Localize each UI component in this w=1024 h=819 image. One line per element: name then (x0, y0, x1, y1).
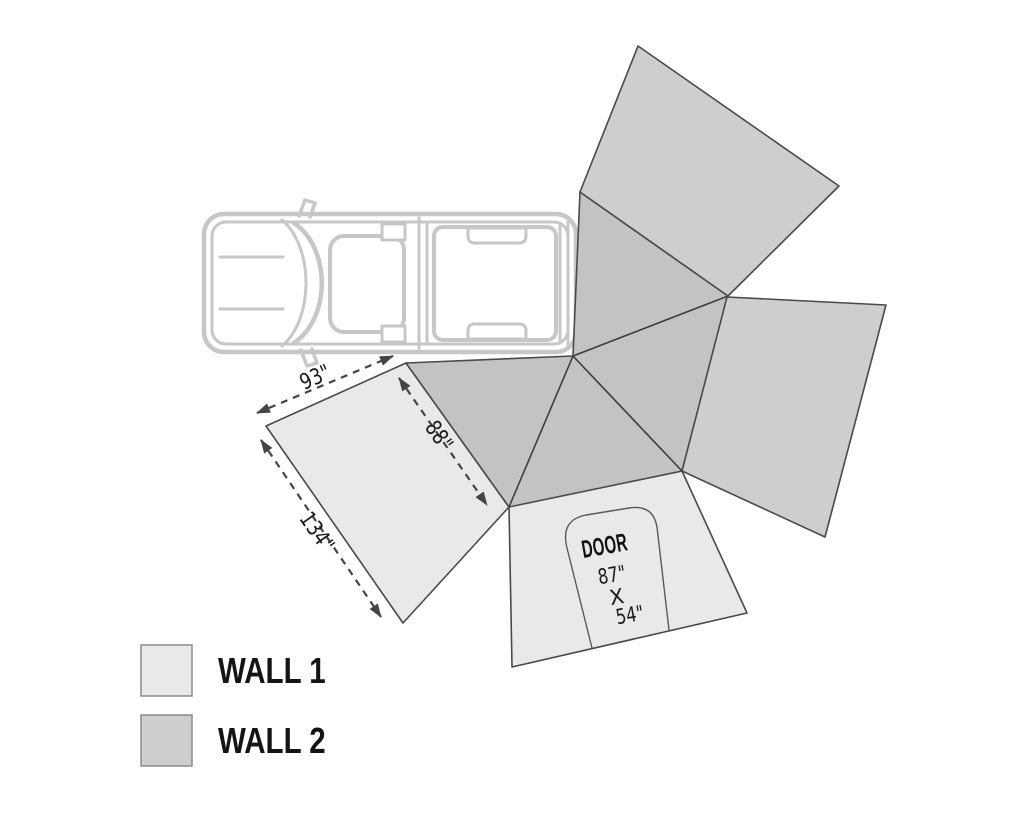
legend-label-wall2: WALL 2 (218, 720, 326, 762)
legend-row-wall2: WALL 2 (140, 714, 349, 767)
awning-wall-diagram: DOOR 87" X 54" 93" 88" 134" WALL 1 WALL … (0, 0, 1024, 819)
vehicle-cab-bed-divider (419, 218, 427, 348)
vehicle-tailgate-lines (560, 222, 568, 345)
legend: WALL 1 WALL 2 (140, 644, 349, 767)
vehicle-cab-roof (330, 236, 404, 332)
legend-label-wall1: WALL 1 (218, 650, 326, 692)
vehicle-bed-notch-bottom (468, 324, 526, 339)
vehicle-bed-notch-top (468, 228, 526, 243)
vehicle-roof-mount-top (382, 224, 405, 240)
wall-1-door-panel (509, 471, 747, 667)
wall-1-swatch (140, 644, 193, 697)
door-width-label: 54" (614, 601, 646, 629)
legend-row-wall1: WALL 1 (140, 644, 349, 697)
dimension-label-93: 93" (296, 360, 334, 395)
vehicle-roof-mount-bottom (382, 326, 405, 342)
vehicle-windshield-outer (282, 220, 306, 346)
wall-2-swatch (140, 714, 193, 767)
vehicle-top-view (204, 200, 576, 366)
